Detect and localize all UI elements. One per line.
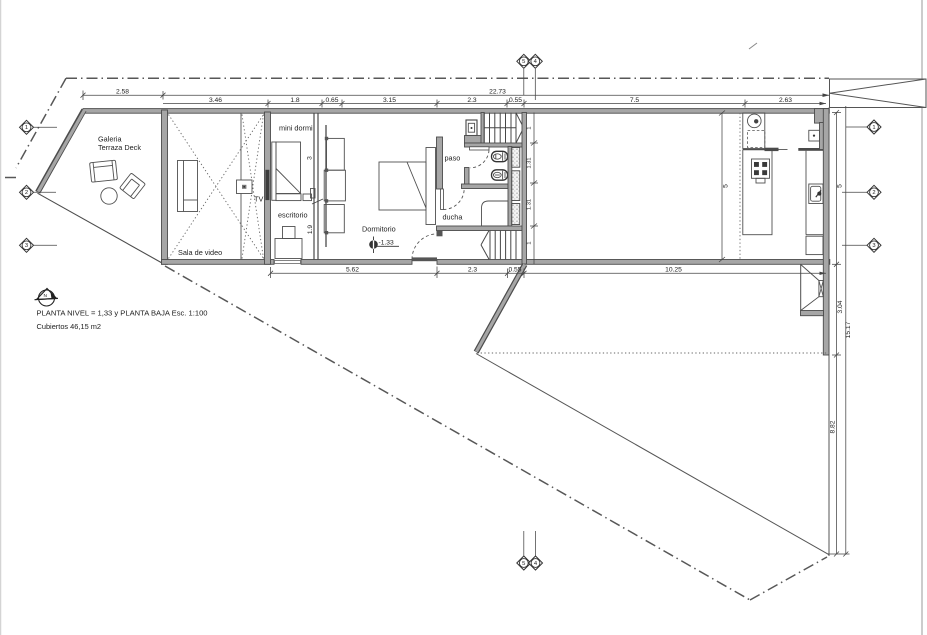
svg-text:Terraza Deck: Terraza Deck bbox=[98, 143, 141, 152]
svg-text:8.82: 8.82 bbox=[830, 420, 837, 433]
svg-text:3.46: 3.46 bbox=[209, 97, 222, 104]
svg-text:-1.33: -1.33 bbox=[379, 239, 395, 246]
svg-text:1: 1 bbox=[872, 125, 875, 131]
svg-text:2.63: 2.63 bbox=[779, 97, 792, 104]
svg-text:5: 5 bbox=[522, 561, 525, 567]
svg-text:3: 3 bbox=[872, 243, 875, 249]
svg-text:PLANTA NIVEL = 1,33 y PLANTA B: PLANTA NIVEL = 1,33 y PLANTA BAJA Esc. 1… bbox=[37, 309, 208, 318]
svg-text:15.17: 15.17 bbox=[845, 321, 852, 338]
svg-text:N: N bbox=[44, 293, 48, 299]
svg-text:3.15: 3.15 bbox=[383, 97, 396, 104]
svg-text:3: 3 bbox=[25, 243, 28, 249]
svg-text:3.04: 3.04 bbox=[837, 300, 844, 313]
svg-text:5.62: 5.62 bbox=[346, 267, 359, 274]
svg-text:2: 2 bbox=[872, 190, 875, 196]
svg-text:Cubiertos 46,15 m2: Cubiertos 46,15 m2 bbox=[37, 322, 102, 331]
svg-text:paso: paso bbox=[445, 154, 461, 163]
svg-text:2: 2 bbox=[25, 190, 28, 196]
svg-text:0.65: 0.65 bbox=[325, 97, 338, 104]
svg-text:7.5: 7.5 bbox=[630, 97, 640, 104]
svg-text:1.9: 1.9 bbox=[307, 225, 314, 235]
svg-text:1.8: 1.8 bbox=[290, 97, 300, 104]
svg-text:mini dormi: mini dormi bbox=[279, 124, 313, 133]
svg-text:2.3: 2.3 bbox=[467, 97, 477, 104]
svg-text:0.55: 0.55 bbox=[509, 97, 522, 104]
svg-text:1: 1 bbox=[527, 241, 533, 244]
svg-text:Sala de video: Sala de video bbox=[178, 248, 222, 257]
svg-text:TV: TV bbox=[254, 195, 263, 204]
svg-text:2.3: 2.3 bbox=[468, 267, 478, 274]
svg-text:5: 5 bbox=[723, 184, 730, 188]
svg-text:3: 3 bbox=[306, 156, 313, 160]
svg-text:Dormitorio: Dormitorio bbox=[362, 225, 396, 234]
svg-text:5: 5 bbox=[837, 184, 844, 188]
svg-text:1: 1 bbox=[25, 125, 28, 131]
svg-text:22.73: 22.73 bbox=[489, 88, 506, 95]
svg-text:1: 1 bbox=[527, 126, 533, 129]
svg-text:0.55: 0.55 bbox=[508, 267, 521, 274]
svg-text:5: 5 bbox=[522, 59, 525, 65]
svg-text:1.31: 1.31 bbox=[527, 199, 533, 210]
svg-text:1.31: 1.31 bbox=[527, 157, 533, 168]
svg-text:ducha: ducha bbox=[443, 213, 464, 222]
svg-text:10.25: 10.25 bbox=[665, 267, 682, 274]
svg-text:escritorio: escritorio bbox=[278, 211, 308, 220]
svg-text:2.58: 2.58 bbox=[116, 88, 129, 95]
